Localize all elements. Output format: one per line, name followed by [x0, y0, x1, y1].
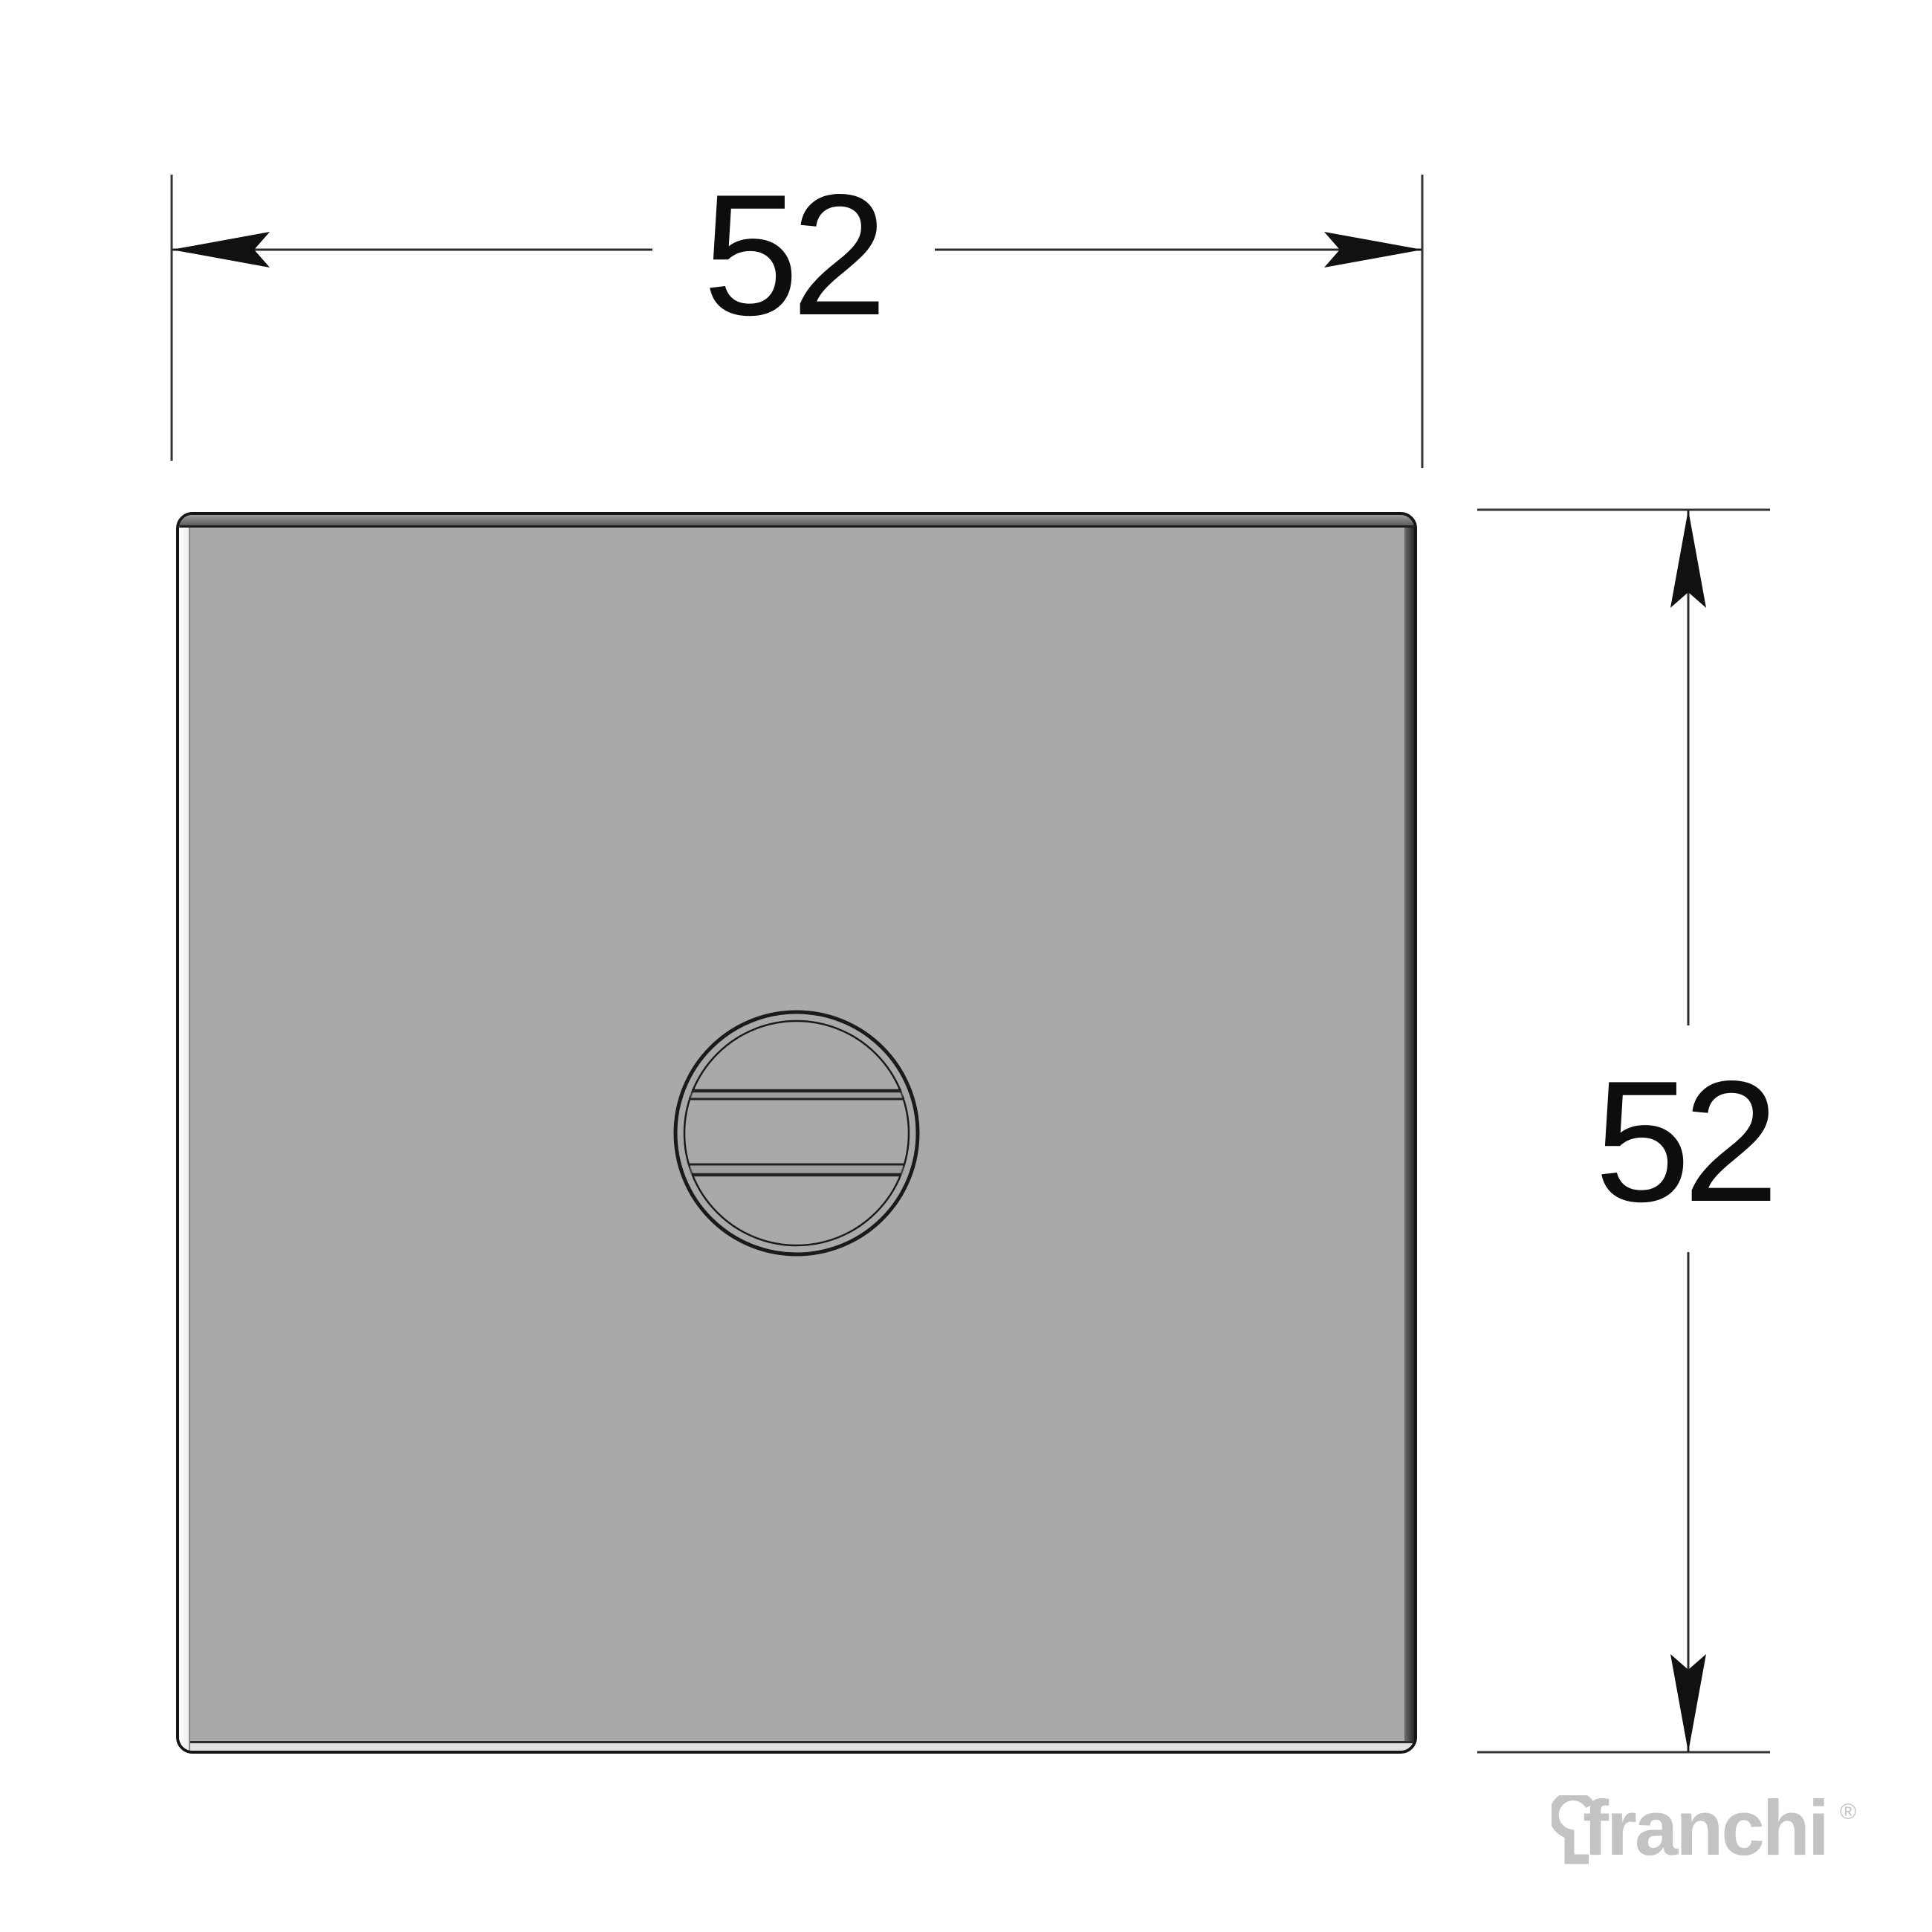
width-dimension-label: 52 — [672, 169, 910, 342]
plate-top-bevel — [179, 515, 1414, 528]
plate-left-bevel — [179, 515, 190, 1751]
brand-logo: franchi ® — [1552, 1789, 1908, 1878]
registered-trademark-icon: ® — [1840, 1800, 1856, 1825]
screw-cap-inner-ring — [684, 1021, 909, 1245]
plate-bottom-bevel — [179, 1741, 1414, 1751]
technical-drawing-canvas: 52 52 franchi ® — [0, 0, 1932, 1932]
brand-logo-text: franchi — [1583, 1789, 1827, 1867]
plate — [176, 512, 1417, 1754]
screw-cap — [663, 999, 930, 1267]
height-dimension-label: 52 — [1564, 1056, 1802, 1228]
plate-right-bevel — [1404, 515, 1414, 1751]
screw-cap-outer-ring — [675, 1012, 918, 1254]
